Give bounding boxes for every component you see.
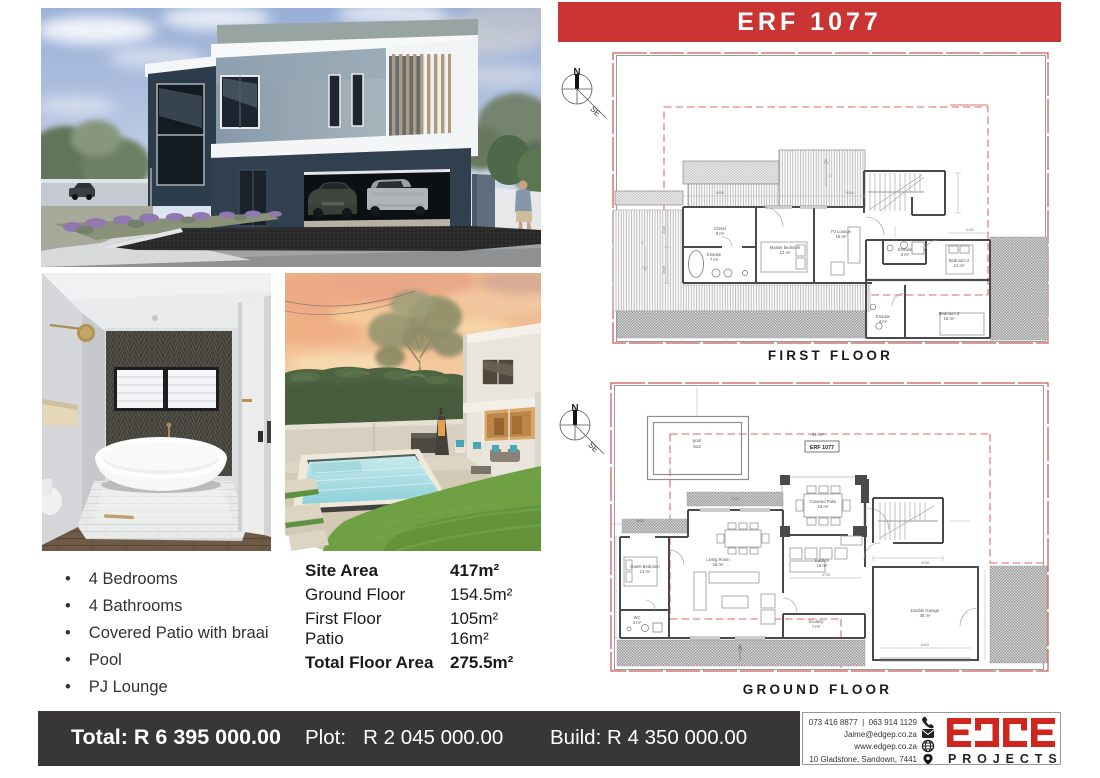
svg-text:16 m²: 16 m² bbox=[944, 316, 955, 321]
svg-text:PROJECTS: PROJECTS bbox=[948, 752, 1059, 766]
svg-text:6400: 6400 bbox=[921, 643, 929, 647]
svg-text:3 m²: 3 m² bbox=[901, 252, 910, 257]
svg-text:13 m²: 13 m² bbox=[640, 569, 651, 574]
svg-text:2140: 2140 bbox=[662, 226, 666, 234]
svg-text:4040: 4040 bbox=[636, 519, 644, 523]
svg-text:4 m²: 4 m² bbox=[633, 620, 642, 625]
svg-text:1630: 1630 bbox=[662, 266, 666, 274]
svg-text:5x3: 5x3 bbox=[693, 444, 701, 449]
svg-text:ERF 1077: ERF 1077 bbox=[810, 445, 834, 451]
svg-text:3°: 3° bbox=[641, 240, 645, 245]
svg-text:16 m²: 16 m² bbox=[817, 563, 828, 568]
svg-text:pool: pool bbox=[693, 438, 702, 443]
svg-text:8 m²: 8 m² bbox=[716, 231, 725, 236]
svg-text:36 m²: 36 m² bbox=[920, 613, 931, 618]
svg-text:3°: 3° bbox=[829, 174, 833, 178]
svg-text:SE: SE bbox=[588, 104, 602, 118]
svg-text:7 m²: 7 m² bbox=[710, 257, 719, 262]
svg-text:4430: 4430 bbox=[921, 561, 929, 565]
svg-text:4 m²: 4 m² bbox=[879, 319, 888, 324]
svg-text:12 m²: 12 m² bbox=[780, 250, 791, 255]
svg-text:15 m²: 15 m² bbox=[818, 504, 829, 509]
svg-text:7 m²: 7 m² bbox=[812, 624, 821, 629]
svg-text:3130: 3130 bbox=[966, 228, 974, 232]
svg-text:4730: 4730 bbox=[822, 573, 830, 577]
svg-text:26 m²: 26 m² bbox=[713, 562, 724, 567]
svg-text:SE: SE bbox=[586, 440, 600, 454]
svg-text:9100: 9100 bbox=[716, 191, 724, 195]
svg-text:5100: 5100 bbox=[846, 191, 854, 195]
svg-text:16 m²: 16 m² bbox=[836, 234, 847, 239]
svg-text:417m²: 417m² bbox=[812, 432, 824, 437]
svg-text:3370: 3370 bbox=[731, 497, 739, 501]
svg-text:12 m²: 12 m² bbox=[954, 263, 965, 268]
